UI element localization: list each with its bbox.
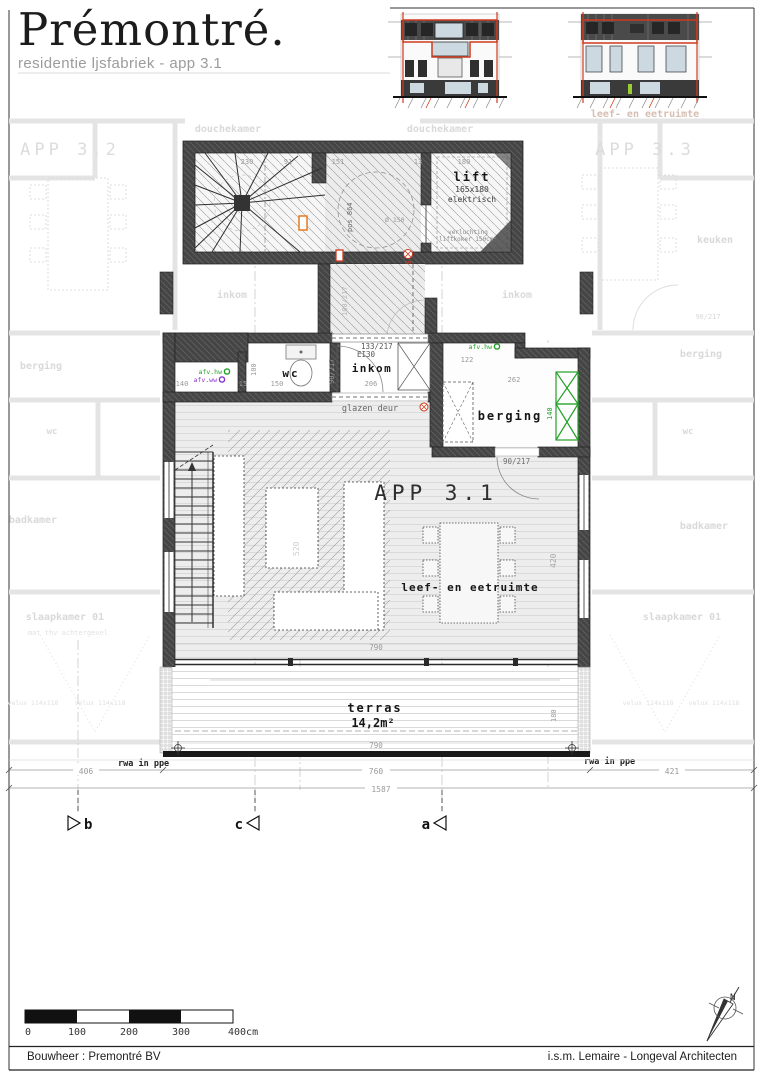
dim-790-living: 790 <box>369 643 383 652</box>
dim-420: 420 <box>549 553 558 568</box>
lift-type: elektrisch <box>448 195 496 204</box>
scale-tick-300: 300 <box>172 1027 190 1038</box>
dim-760: 760 <box>369 767 384 776</box>
lift-note-2: liftkoker 150cm² <box>439 236 497 243</box>
pos-label: pos 864 <box>346 202 354 232</box>
afv-hw-point-2 <box>494 344 499 349</box>
faded-label-douchekamer-left: douchekamer <box>195 124 261 135</box>
floor-plan-canvas: douchekamer douchekamer APP 3.2 APP 3.3 … <box>0 0 763 1080</box>
living-label: leef- en eetruimte <box>401 581 538 594</box>
wc-label: wc <box>282 367 299 380</box>
dim-230: 230 <box>241 158 254 166</box>
section-label-c: c <box>235 817 243 833</box>
faded-label-badkamer-left: badkamer <box>9 515 57 526</box>
faded-label-velux-l1: velux 114x118 <box>8 699 59 707</box>
north-label: N <box>730 993 735 1003</box>
section-flag-c <box>247 816 259 830</box>
dim-140: 140 <box>176 380 189 388</box>
dim-150: 150 <box>271 380 284 388</box>
red-marker <box>336 250 343 261</box>
footer-architects: i.s.m. Lemaire - Longeval Architecten <box>548 1051 737 1063</box>
faded-label-velux-r1: velux 114x118 <box>623 699 674 707</box>
scale-tick-200: 200 <box>120 1027 138 1038</box>
afv-hw-point <box>224 369 229 374</box>
section-flag-a <box>434 816 446 830</box>
elevation-rear <box>568 12 712 108</box>
dim-91: 91 <box>284 158 292 166</box>
faded-label-douchekamer-right: douchekamer <box>407 124 473 135</box>
apartment-title: APP 3.1 <box>374 481 498 505</box>
faded-label-inkom-right: inkom <box>502 289 532 301</box>
title-block: Prémontré. residentie ljsfabriek - app 3… <box>18 6 398 72</box>
faded-label-app-3-2: APP 3.2 <box>20 140 120 160</box>
dining-set <box>423 523 515 623</box>
faded-label-berging-right: berging <box>680 348 722 360</box>
afv-ww-point <box>219 377 224 382</box>
faded-label-wc-right: wc <box>683 427 694 437</box>
terrace: terras 14,2m² 790 180 <box>160 667 590 757</box>
diameter-label: Ø 150 <box>385 216 405 224</box>
faded-label-keuken: keuken <box>697 235 733 246</box>
section-label-b: b <box>84 817 92 833</box>
corridor-door-label: 100/217 <box>341 286 349 316</box>
lift-note-1: verluchting <box>448 229 488 236</box>
faded-label-berging-left: berging <box>20 360 62 372</box>
orange-marker <box>299 216 307 230</box>
terrace-edge <box>163 751 590 757</box>
fire-rating-label: EI30 <box>357 350 376 359</box>
faded-label-slaapkamer-left: slaapkamer 01 <box>26 612 104 623</box>
inkom-label: inkom <box>352 362 393 375</box>
scale-tick-0: 0 <box>25 1027 31 1038</box>
north-arrow: N <box>707 987 743 1041</box>
dim-180-lift: 180 <box>458 158 471 166</box>
berging-label: berging <box>478 409 543 423</box>
dim-122: 122 <box>461 356 474 364</box>
dim-100: 100 <box>250 363 258 376</box>
faded-label-velux-l2: velux 114x118 <box>75 699 126 707</box>
faded-label-living-above: leef- en eetruimte <box>591 108 699 120</box>
afv-hw-label-2: afv.hw <box>469 343 493 351</box>
dim-151: 151 <box>332 158 345 166</box>
dim-13: 13 <box>414 158 422 166</box>
section-label-a: a <box>422 817 430 833</box>
dim-140-green: 140 <box>546 407 554 420</box>
apartment-app-3-1: 133/217 EI30 wc 140 15 100 150 afv.hw af… <box>118 333 635 769</box>
dim-421: 421 <box>665 767 680 776</box>
dim-406: 406 <box>79 767 94 776</box>
dining-table <box>440 523 498 623</box>
elevation-front <box>388 12 512 108</box>
lift-label: lift <box>454 170 491 184</box>
faded-label-app-3-3: APP 3.3 <box>595 140 695 160</box>
faded-label-mat: mat thv achtergevel <box>28 629 108 637</box>
section-flag-b <box>68 816 80 830</box>
faded-label-door: 90/217 <box>695 313 720 321</box>
dim-520: 520 <box>292 541 301 556</box>
dim-206: 206 <box>365 380 378 388</box>
faded-label-badkamer-right: badkamer <box>680 521 728 532</box>
glazen-deur-label: glazen deur <box>342 404 398 414</box>
faded-label-wc-left: wc <box>47 427 58 437</box>
faded-label-inkom-left: inkom <box>217 289 247 301</box>
scale-tick-100: 100 <box>68 1027 86 1038</box>
dim-1587: 1587 <box>371 785 390 794</box>
dim-262: 262 <box>508 376 521 384</box>
faded-label-velux-r2: velux 114x118 <box>689 699 740 707</box>
project-subtitle: residentie ljsfabriek - app 3.1 <box>18 55 398 72</box>
dim-15: 15 <box>239 380 247 388</box>
scale-bar: 0 100 200 300 400cm <box>25 1010 258 1038</box>
afv-hw-label: afv.hw <box>199 368 223 376</box>
scale-tick-400: 400cm <box>228 1027 258 1038</box>
dim-180-terras: 180 <box>550 709 558 722</box>
afv-ww-label: afv.ww <box>194 376 218 384</box>
dim-790-terras: 790 <box>369 741 383 750</box>
lift-size: 165x180 <box>455 185 489 194</box>
project-title: Prémontré. <box>18 6 398 53</box>
rwa-right: rwa in ppe <box>584 756 635 767</box>
stair-lift-block: pos 864 Ø 150 RM 230 91 151 13 180 lift … <box>160 141 593 338</box>
faded-label-slaapkamer-right: slaapkamer 01 <box>643 612 721 623</box>
inkom-door-dim: 90/217 <box>328 359 336 384</box>
terras-area: 14,2m² <box>351 716 394 730</box>
section-markers: b c a <box>68 790 446 833</box>
berging-door-label: 90/217 <box>503 457 530 466</box>
footer-client: Bouwheer : Premontré BV <box>27 1051 161 1063</box>
south-glazing <box>175 658 578 666</box>
terras-label: terras <box>347 701 402 715</box>
stair-newel <box>234 195 250 211</box>
drawing-sheet: douchekamer douchekamer APP 3.2 APP 3.3 … <box>0 0 763 1080</box>
